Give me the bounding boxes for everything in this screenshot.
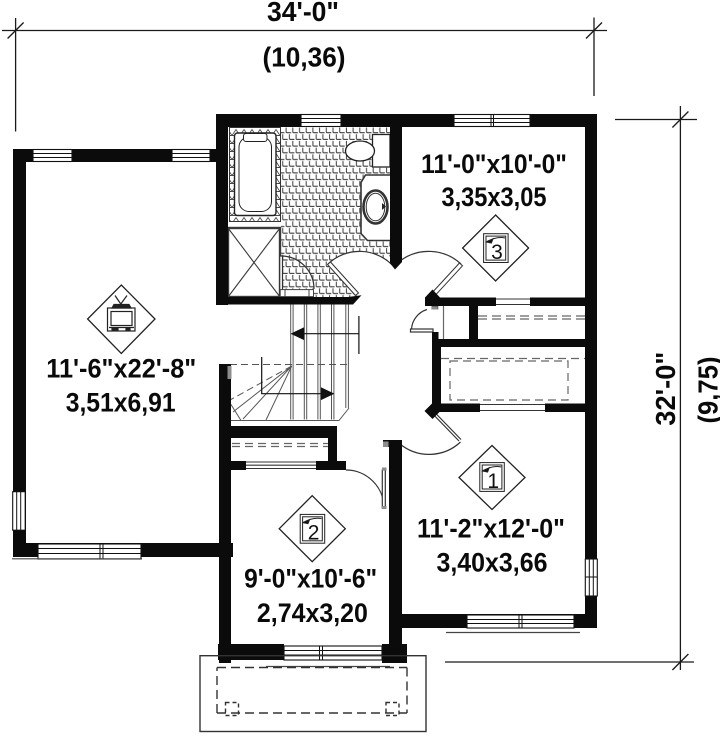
svg-text:3,40x3,66: 3,40x3,66 [437, 548, 548, 578]
svg-text:34'-0": 34'-0" [267, 0, 339, 27]
svg-text:(10,36): (10,36) [263, 42, 346, 73]
svg-text:1: 1 [487, 470, 499, 493]
svg-text:9'-0"x10'-6": 9'-0"x10'-6" [244, 564, 377, 594]
svg-text:32'-0": 32'-0" [650, 352, 681, 426]
svg-text:3,35x3,05: 3,35x3,05 [442, 182, 547, 212]
svg-text:11'-0"x10'-0": 11'-0"x10'-0" [421, 149, 567, 179]
svg-text:2,74x3,20: 2,74x3,20 [257, 598, 368, 628]
svg-text:(9,75): (9,75) [693, 357, 720, 424]
svg-text:11'-6"x22'-8": 11'-6"x22'-8" [46, 354, 196, 384]
svg-text:2: 2 [308, 522, 320, 545]
svg-text:3,51x6,91: 3,51x6,91 [66, 387, 176, 417]
svg-text:11'-2"x12'-0": 11'-2"x12'-0" [417, 514, 565, 544]
svg-text:3: 3 [491, 241, 503, 264]
